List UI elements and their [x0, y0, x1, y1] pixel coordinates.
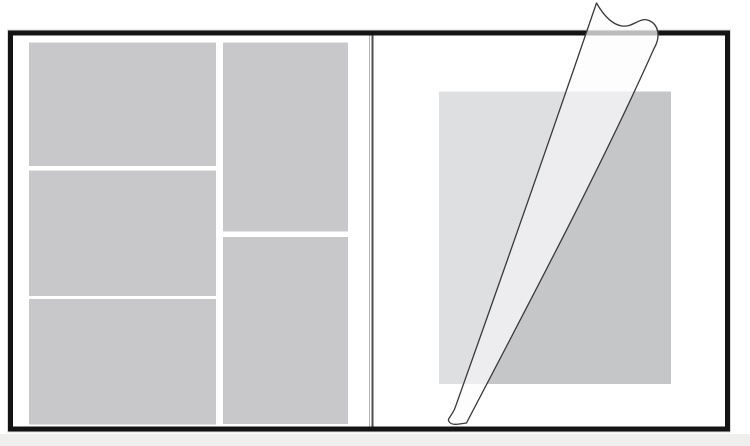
photo-slot-3 [29, 299, 216, 425]
photo-slot-2 [29, 171, 216, 297]
illustration-stage [0, 0, 750, 446]
album-diagram [0, 0, 750, 446]
bottom-shadow-bar [0, 434, 750, 446]
photo-slot-1 [29, 43, 216, 167]
photo-slot-4 [223, 43, 348, 232]
photo-slot-5 [223, 237, 348, 424]
